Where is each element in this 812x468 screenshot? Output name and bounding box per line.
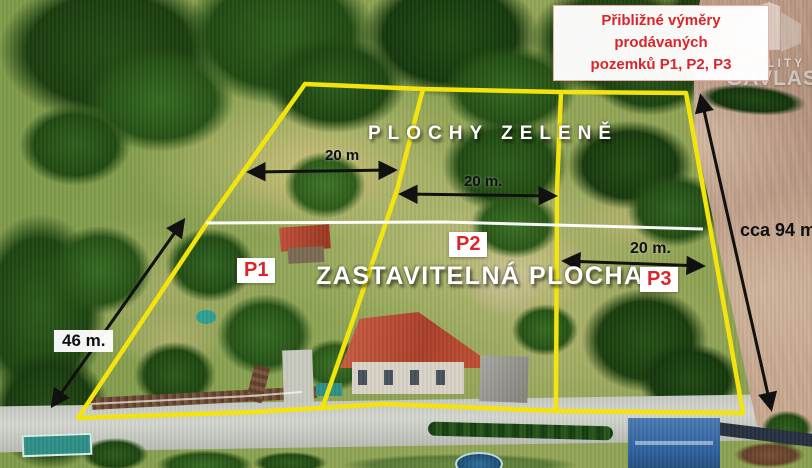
gate <box>316 383 342 396</box>
plot-label-p2: P2 <box>449 232 487 257</box>
plot-label-p1: P1 <box>237 258 275 283</box>
teal-fence-panel <box>22 433 93 457</box>
annotated-aerial-photo: PLOCHY ZELENĚ ZASTAVITELNÁ PLOCHA P1 P2 … <box>0 0 812 468</box>
title-line2: pozemků P1, P2, P3 <box>556 54 766 76</box>
measurement-20m-p1: 20 m <box>325 147 359 164</box>
roof-ridge <box>635 441 712 445</box>
garden-mulch <box>722 438 812 468</box>
measurement-46m: 46 m. <box>54 330 113 352</box>
small-pool <box>196 310 216 324</box>
measurement-20m-p2: 20 m. <box>464 173 502 190</box>
tree-blob <box>500 295 590 365</box>
driveway <box>282 349 314 402</box>
green-areas-label: PLOCHY ZELENĚ <box>368 123 618 145</box>
house-annex <box>479 355 529 403</box>
house-wall <box>352 362 464 394</box>
measurement-20m-p3: 20 m. <box>630 240 671 258</box>
title-box: Přibližné výměry prodávaných pozemků P1,… <box>553 5 769 81</box>
buildable-area-label: ZASTAVITELNÁ PLOCHA <box>316 262 644 291</box>
measurement-94m: cca 94 m. <box>740 220 812 241</box>
house-windows <box>358 370 458 385</box>
title-line1: Přibližné výměry prodávaných <box>556 10 766 54</box>
plot-label-p3: P3 <box>640 267 678 292</box>
blue-roof-building <box>628 418 720 468</box>
